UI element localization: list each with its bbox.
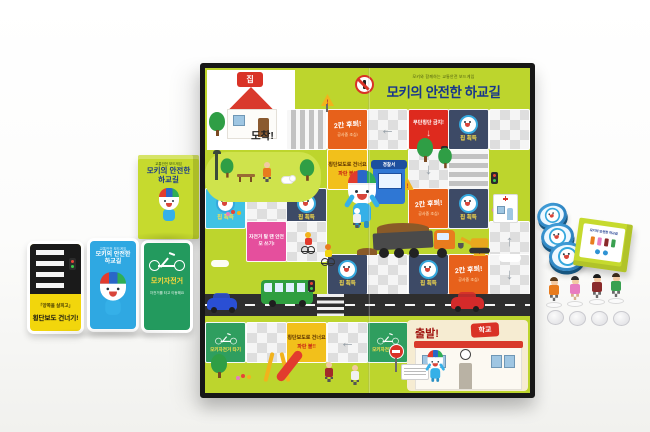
tile-label: 칩 획득 bbox=[217, 215, 234, 222]
box-shadow bbox=[130, 232, 205, 244]
blue-car-icon bbox=[207, 298, 237, 310]
standee-base-disc bbox=[591, 311, 608, 326]
tile-sublabel: 공사중 조심! bbox=[418, 211, 439, 216]
cloud-icon bbox=[211, 260, 229, 267]
construction-worker-figure bbox=[353, 208, 361, 228]
bench-icon bbox=[237, 174, 255, 177]
moki-mascot-mini bbox=[99, 272, 128, 315]
standee-base-disc bbox=[547, 310, 564, 325]
sign-pole bbox=[395, 358, 397, 372]
kid-on-bike-figure bbox=[301, 232, 315, 252]
moki-chip-icon bbox=[459, 115, 478, 134]
board-subtitle: 모키와 함께하는 교통안전 보드게임 bbox=[361, 74, 526, 80]
bicycle-icon bbox=[149, 253, 185, 271]
arrival-home-block: 집 도착! bbox=[207, 70, 295, 150]
tree-icon bbox=[438, 148, 452, 168]
start-school-block: 출발! 학교 bbox=[407, 320, 528, 391]
hospital-window-icon bbox=[497, 206, 505, 214]
moki-chip-icon bbox=[338, 260, 357, 279]
running-kid-figure bbox=[351, 365, 359, 385]
dump-truck-icon bbox=[373, 220, 465, 258]
tile-label: 횡단보도로 건너요 bbox=[328, 162, 366, 169]
bike-card: 모키자전거 자전거를 타고 이동해요 bbox=[141, 240, 193, 333]
bicycle-icon bbox=[215, 333, 237, 344]
standee-base-disc bbox=[569, 311, 586, 326]
player-standee bbox=[567, 276, 583, 307]
construction-penalty-tile: 2칸 후퇴! 공사중 조심! bbox=[448, 254, 489, 295]
tile-label: 2칸 후퇴! bbox=[333, 120, 361, 131]
board-title-group: 모키와 함께하는 교통안전 보드게임 모키의 안전한 하교길 bbox=[361, 74, 526, 101]
tile-sublabel: 공사중 조심! bbox=[458, 277, 479, 282]
moki-chip-icon bbox=[459, 194, 478, 213]
hospital-icon bbox=[493, 194, 518, 223]
tile-sublabel: 공사중 조심! bbox=[337, 132, 358, 137]
path-tile bbox=[367, 254, 408, 295]
start-label: 출발! bbox=[415, 325, 439, 341]
police-window-icon bbox=[378, 173, 402, 189]
chips-thumbnail bbox=[594, 249, 608, 256]
player-standee bbox=[546, 277, 562, 308]
crosswalk-illustration bbox=[30, 244, 81, 294]
moki-chip-icon bbox=[419, 260, 438, 279]
police-box: 경찰서 bbox=[373, 160, 405, 204]
path-tile: ← bbox=[327, 322, 368, 363]
hospital-door-icon bbox=[507, 208, 513, 220]
tile-label: 칩 획득 bbox=[460, 136, 477, 143]
bus-icon bbox=[261, 280, 313, 304]
road-crosswalk bbox=[317, 294, 344, 316]
moki-mascot-mini bbox=[158, 188, 180, 221]
no-entry-sign-icon bbox=[389, 344, 404, 359]
crosswalk-card: 「양쪽을 살피고」 횡단보도 건너기! bbox=[27, 241, 84, 334]
school-roof-icon bbox=[414, 341, 523, 348]
traffic-light-icon bbox=[69, 258, 76, 270]
card-title: 횡단보도 건너기! bbox=[33, 312, 79, 322]
cards-shadow bbox=[25, 328, 195, 340]
flowers-icon bbox=[241, 374, 245, 378]
moki-mascot bbox=[347, 170, 377, 222]
moki-mascot-small bbox=[427, 350, 444, 379]
component-box: 모키의 안전한 하교길 bbox=[573, 217, 633, 272]
tree-icon bbox=[209, 112, 225, 136]
flowers-icon bbox=[231, 210, 235, 214]
card-back: 교통안전 보드게임 모키의 안전한 하교길 bbox=[87, 238, 139, 332]
police-sign: 경찰서 bbox=[371, 160, 407, 169]
game-board: 집 도착! 모키와 함께하는 교통안전 보드게임 모키의 안전한 하교길 2칸 … bbox=[200, 63, 535, 398]
bicycle-icon bbox=[377, 333, 399, 344]
card-title-line2: 하교길 bbox=[105, 259, 122, 266]
tile-label: 횡단보도로 건너요 bbox=[287, 335, 325, 342]
crosswalk-tile bbox=[286, 109, 327, 150]
tree-icon bbox=[417, 138, 433, 162]
card-box: 교통안전 보드게임 모키의 안전한 하교길 bbox=[138, 155, 199, 239]
tree-icon bbox=[221, 158, 234, 177]
bike-tile: 모키자전거 타기 bbox=[367, 322, 408, 363]
house-window-icon bbox=[233, 115, 245, 126]
school-door-icon bbox=[459, 363, 472, 389]
school-window-icon bbox=[504, 355, 515, 368]
board-fold-line bbox=[368, 68, 370, 393]
red-car-icon bbox=[451, 297, 484, 309]
crosswalk-tile bbox=[448, 149, 489, 190]
no-pedestrian-sign-icon bbox=[355, 75, 374, 94]
tile-label: 자전거 탈 땐 안전모 쓰기! bbox=[247, 235, 286, 247]
traffic-light-icon bbox=[491, 172, 498, 184]
home-sign: 집 bbox=[237, 72, 263, 87]
tile-label: 모키자전거 타기 bbox=[210, 347, 241, 353]
tile-label: 칩 획득 bbox=[420, 281, 437, 288]
streetlight-icon bbox=[215, 154, 218, 180]
construction-penalty-tile: 2칸 후퇴! 공사중 조심! bbox=[327, 109, 368, 150]
path-tile: ← bbox=[367, 109, 408, 150]
chip-tile: 칩 획득 bbox=[408, 254, 449, 295]
arrive-label: 도착! bbox=[251, 128, 274, 143]
red-cross-icon bbox=[505, 196, 507, 201]
standee-base-disc bbox=[613, 311, 630, 326]
excavator-icon bbox=[460, 231, 497, 255]
school-sign: 학교 bbox=[471, 322, 500, 337]
player-standee bbox=[589, 274, 605, 305]
tree-icon bbox=[300, 159, 314, 181]
card-caption: 자전거를 타고 이동해요 bbox=[150, 291, 184, 296]
cloud-icon bbox=[499, 254, 521, 262]
house-roof-icon bbox=[221, 87, 281, 109]
tile-sublabel: 파란 불!! bbox=[297, 344, 316, 351]
tile-label: 2칸 후퇴! bbox=[454, 265, 482, 276]
board-title: 모키의 안전한 하교길 bbox=[361, 81, 526, 101]
school-clock-icon bbox=[460, 349, 471, 360]
traffic-light-icon bbox=[308, 280, 315, 292]
tree-icon bbox=[211, 354, 227, 378]
card-title: 모키자전거 bbox=[151, 276, 183, 286]
kid-on-bike-figure bbox=[321, 244, 335, 264]
school-window-icon bbox=[491, 355, 502, 368]
figures-thumbnail bbox=[589, 237, 615, 248]
card-caption: 「양쪽을 살피고」 bbox=[38, 303, 73, 309]
tile-label: 무단횡단 금지! bbox=[413, 120, 444, 127]
running-kid-figure bbox=[325, 362, 333, 382]
person-figure bbox=[263, 162, 271, 182]
helmet-rule-tile: 자전거 탈 땐 안전모 쓰기! bbox=[246, 221, 287, 262]
tile-label: 2칸 후퇴! bbox=[414, 199, 442, 210]
board-game-product-photo: 집 도착! 모키와 함께하는 교통안전 보드게임 모키의 안전한 하교길 2칸 … bbox=[0, 0, 650, 432]
sign-pole bbox=[326, 104, 328, 112]
component-box-label: 모키의 안전한 하교길 bbox=[589, 229, 617, 237]
box-title-line2: 하교길 bbox=[158, 176, 179, 185]
rule-sign-board bbox=[401, 364, 429, 380]
chip-tile: 칩 획득 bbox=[448, 109, 489, 150]
player-standee bbox=[608, 273, 624, 304]
tile-label: 칩 획득 bbox=[339, 281, 356, 288]
path-tile bbox=[489, 109, 530, 150]
dog-icon bbox=[281, 176, 294, 184]
